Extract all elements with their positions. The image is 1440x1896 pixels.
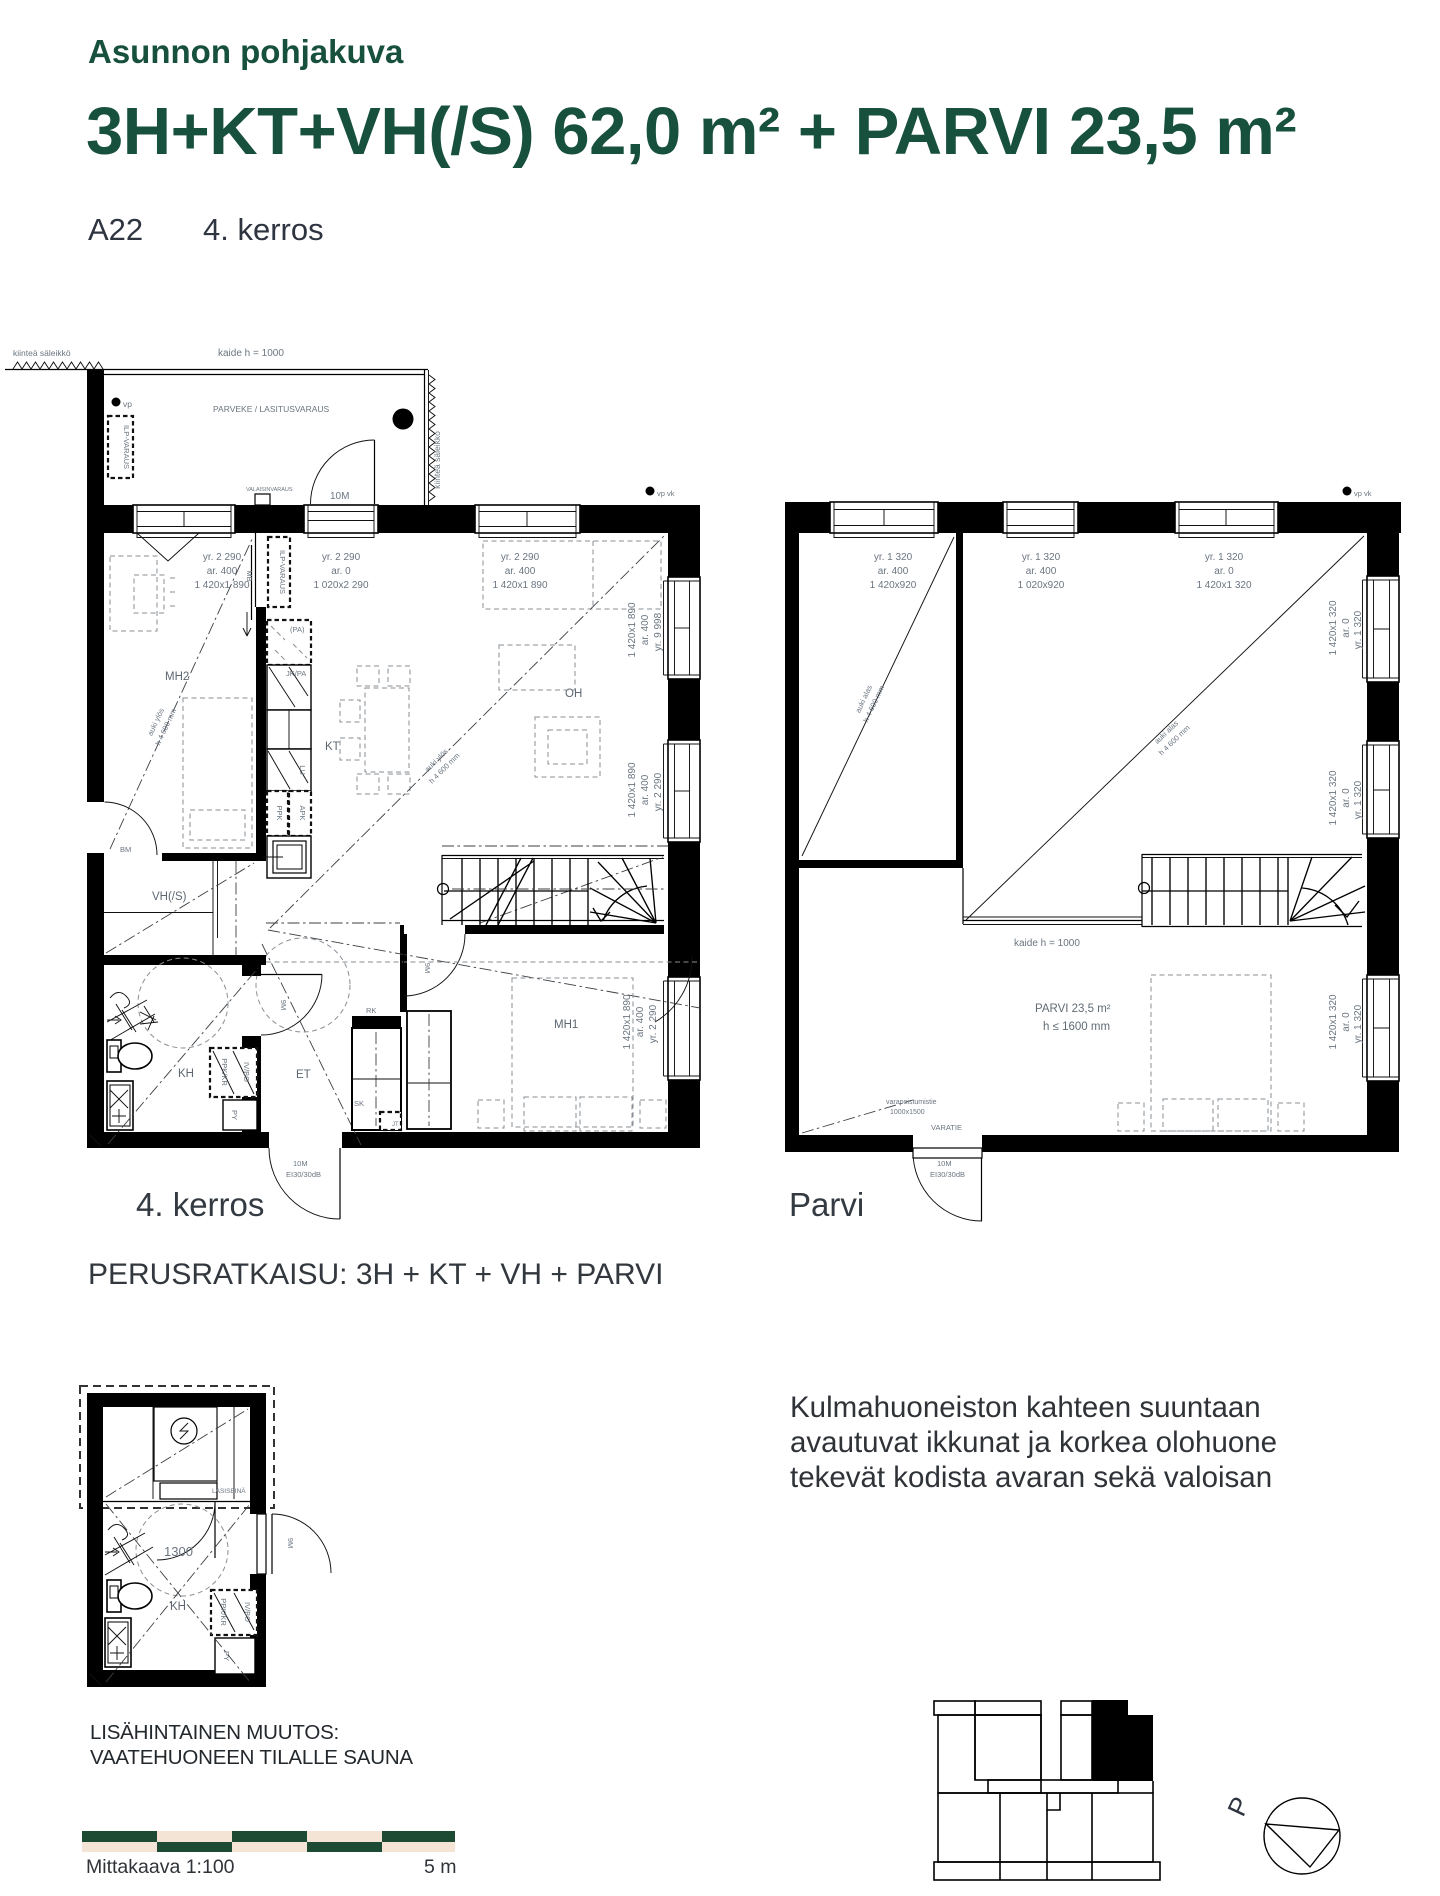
- svg-text:ar. 0: ar. 0: [1341, 618, 1352, 638]
- svg-text:yr. 2 290: yr. 2 290: [501, 552, 540, 563]
- svg-text:yr. 2 290: yr. 2 290: [653, 772, 664, 811]
- svg-text:1 020x920: 1 020x920: [1018, 580, 1065, 591]
- svg-text:IV/BO: IV/BO: [242, 1062, 251, 1082]
- svg-text:yr. 2 290: yr. 2 290: [648, 1004, 659, 1043]
- svg-text:10M: 10M: [330, 491, 349, 502]
- svg-text:ILP-VARAUS: ILP-VARAUS: [278, 550, 287, 594]
- svg-text:SK: SK: [354, 1099, 364, 1108]
- svg-text:h ≤ 1600 mm: h ≤ 1600 mm: [1043, 1021, 1110, 1033]
- svg-text:vp vk: vp vk: [657, 489, 675, 498]
- svg-text:LASISEINÄ: LASISEINÄ: [212, 1487, 246, 1495]
- svg-text:ar. 400: ar. 400: [1026, 566, 1057, 577]
- svg-text:9M: 9M: [423, 963, 432, 973]
- svg-text:1 420x1 320: 1 420x1 320: [1328, 770, 1339, 825]
- svg-text:ar. 0: ar. 0: [1214, 566, 1234, 577]
- svg-text:10M: 10M: [293, 1159, 308, 1168]
- svg-text:JT: JT: [392, 1122, 399, 1128]
- svg-text:kaide h = 1000: kaide h = 1000: [218, 348, 284, 359]
- svg-text:kiinteä säleikkö: kiinteä säleikkö: [13, 348, 71, 358]
- svg-text:1 420x1 890: 1 420x1 890: [627, 762, 638, 817]
- svg-text:BM: BM: [120, 845, 131, 854]
- svg-text:PPK: PPK: [275, 805, 284, 820]
- svg-text:ar. 0: ar. 0: [1341, 1012, 1352, 1032]
- svg-text:yr. 1 320: yr. 1 320: [1022, 552, 1061, 563]
- svg-text:ar. 400: ar. 400: [505, 566, 536, 577]
- svg-text:PPK/KR: PPK/KR: [220, 1058, 229, 1086]
- svg-text:P: P: [1221, 1792, 1256, 1820]
- svg-text:kaide h = 1000: kaide h = 1000: [1014, 938, 1080, 949]
- svg-text:1000x1500: 1000x1500: [890, 1109, 925, 1116]
- svg-text:APK: APK: [298, 805, 307, 820]
- svg-text:ar. 400: ar. 400: [640, 774, 651, 805]
- svg-text:1 420x1 890: 1 420x1 890: [627, 602, 638, 657]
- svg-text:ar. 400: ar. 400: [878, 566, 909, 577]
- svg-text:IV/BO: IV/BO: [243, 1602, 252, 1622]
- svg-text:1 420x1 890: 1 420x1 890: [194, 580, 249, 591]
- svg-text:yr. 1 320: yr. 1 320: [1353, 780, 1364, 819]
- svg-text:ET: ET: [296, 1069, 311, 1081]
- svg-text:1 420x1 890: 1 420x1 890: [622, 994, 633, 1049]
- svg-text:1 420x1 320: 1 420x1 320: [1328, 994, 1339, 1049]
- svg-text:1 020x2 290: 1 020x2 290: [313, 580, 368, 591]
- svg-text:EI30/30dB: EI30/30dB: [286, 1170, 321, 1179]
- svg-text:yr. 9 998: yr. 9 998: [653, 612, 664, 651]
- svg-text:vp vk: vp vk: [1354, 489, 1372, 498]
- svg-text:kiinteä säleikkö: kiinteä säleikkö: [432, 431, 442, 489]
- svg-text:RK: RK: [366, 1006, 376, 1015]
- svg-text:VALAISINVARAUS: VALAISINVARAUS: [246, 487, 293, 493]
- svg-text:vp: vp: [123, 399, 132, 409]
- svg-text:varapoistumistie: varapoistumistie: [886, 1099, 937, 1106]
- svg-text:MB: MB: [245, 570, 254, 581]
- svg-text:1 420x1 890: 1 420x1 890: [492, 580, 547, 591]
- svg-text:yr. 2 290: yr. 2 290: [203, 552, 242, 563]
- svg-text:VARATIE: VARATIE: [931, 1123, 962, 1132]
- svg-text:yr. 2 290: yr. 2 290: [322, 552, 361, 563]
- svg-text:MH1: MH1: [554, 1019, 578, 1031]
- svg-text:LU: LU: [298, 765, 307, 775]
- svg-text:PY: PY: [230, 1110, 239, 1120]
- svg-text:MH2: MH2: [165, 671, 189, 683]
- svg-text:ar. 0: ar. 0: [331, 566, 351, 577]
- svg-text:PARVI 23,5 m²: PARVI 23,5 m²: [1035, 1003, 1111, 1015]
- svg-text:(PA): (PA): [290, 625, 305, 634]
- svg-text:PPK/KR: PPK/KR: [219, 1598, 228, 1626]
- svg-text:9M: 9M: [286, 1538, 295, 1548]
- svg-text:ar. 400: ar. 400: [207, 566, 238, 577]
- svg-text:9M: 9M: [279, 1000, 288, 1010]
- svg-text:JK/PA: JK/PA: [286, 669, 306, 678]
- svg-text:KH: KH: [170, 1601, 186, 1613]
- svg-text:1 420x920: 1 420x920: [870, 580, 917, 591]
- svg-text:1300: 1300: [164, 1544, 193, 1559]
- svg-text:yr. 1 320: yr. 1 320: [874, 552, 913, 563]
- svg-text:VH(/S): VH(/S): [152, 891, 187, 903]
- svg-text:ar. 400: ar. 400: [635, 1006, 646, 1037]
- svg-text:PARVEKE / LASITUSVARAUS: PARVEKE / LASITUSVARAUS: [213, 404, 330, 414]
- svg-text:yr. 1 320: yr. 1 320: [1353, 610, 1364, 649]
- svg-text:yr. 1 320: yr. 1 320: [1205, 552, 1244, 563]
- svg-text:EI30/30dB: EI30/30dB: [930, 1170, 965, 1179]
- svg-text:1 420x1 320: 1 420x1 320: [1328, 600, 1339, 655]
- svg-text:1 420x1 320: 1 420x1 320: [1196, 580, 1251, 591]
- svg-text:ILP-VARAUS: ILP-VARAUS: [122, 425, 131, 469]
- svg-text:ar. 400: ar. 400: [640, 614, 651, 645]
- svg-text:KT: KT: [325, 741, 340, 753]
- svg-text:KH: KH: [178, 1068, 194, 1080]
- svg-text:PY: PY: [222, 1651, 231, 1661]
- svg-text:10M: 10M: [937, 1159, 952, 1168]
- svg-text:yr. 1 320: yr. 1 320: [1353, 1004, 1364, 1043]
- svg-text:ar. 0: ar. 0: [1341, 788, 1352, 808]
